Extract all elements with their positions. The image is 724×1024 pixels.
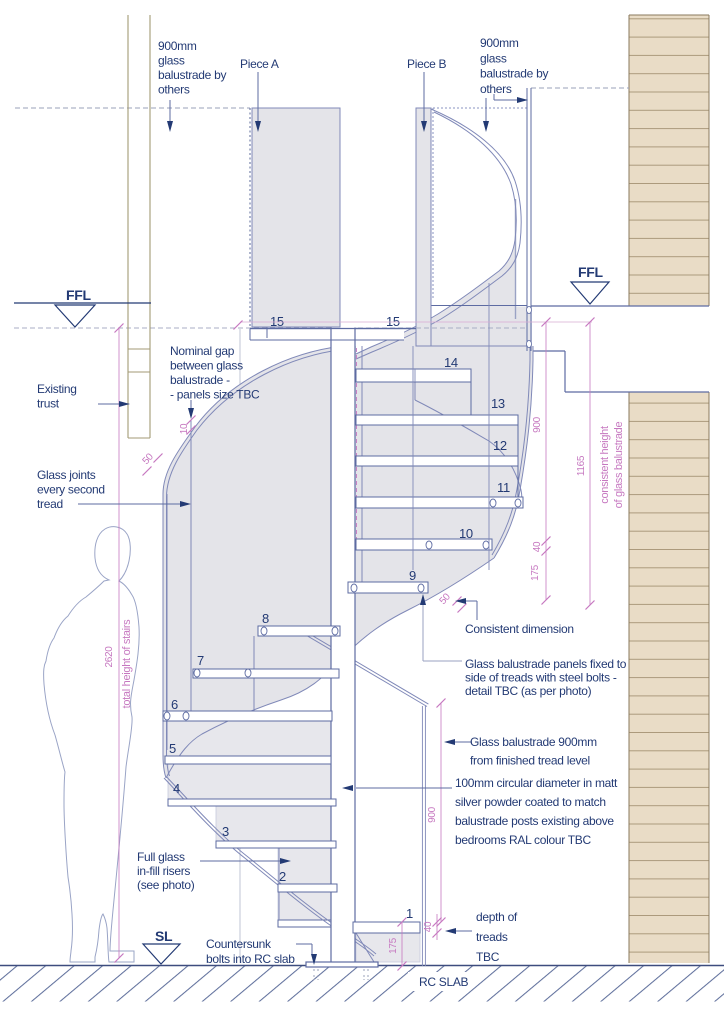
svg-text:175: 175 <box>388 937 399 954</box>
svg-text:Glass balustrade 900mm: Glass balustrade 900mm <box>470 735 597 749</box>
svg-text:depth of: depth of <box>476 910 518 924</box>
svg-text:glass: glass <box>158 54 185 68</box>
svg-text:100mm circular diameter in mat: 100mm circular diameter in matt <box>455 776 618 790</box>
svg-text:7: 7 <box>197 653 204 668</box>
svg-text:12: 12 <box>493 438 507 453</box>
svg-text:- panels size TBC: - panels size TBC <box>170 388 260 402</box>
svg-text:11: 11 <box>497 480 510 495</box>
svg-text:Piece A: Piece A <box>240 57 279 71</box>
svg-text:40: 40 <box>423 921 434 932</box>
svg-text:2: 2 <box>279 869 286 884</box>
svg-text:900: 900 <box>427 806 438 823</box>
svg-text:silver powder coated to match: silver powder coated to match <box>455 795 606 809</box>
svg-text:FFL: FFL <box>578 264 604 280</box>
svg-text:4: 4 <box>173 781 180 796</box>
svg-text:total height of stairs: total height of stairs <box>121 619 133 709</box>
svg-text:TBC: TBC <box>476 950 500 964</box>
svg-text:9: 9 <box>409 568 416 583</box>
svg-text:of glass balustrade: of glass balustrade <box>613 422 625 509</box>
svg-text:side of treads with steel bolt: side of treads with steel bolts - <box>465 671 617 685</box>
svg-text:15: 15 <box>270 314 284 329</box>
svg-text:balustrade by: balustrade by <box>158 68 226 82</box>
svg-text:1165: 1165 <box>576 455 587 476</box>
svg-text:from finished tread level: from finished tread level <box>470 754 590 768</box>
svg-text:10: 10 <box>179 423 190 434</box>
svg-text:Existing: Existing <box>37 382 77 396</box>
svg-text:balustrade posts existing abov: balustrade posts existing above <box>455 814 614 828</box>
svg-text:8: 8 <box>262 611 269 626</box>
svg-text:10: 10 <box>459 526 473 541</box>
svg-text:others: others <box>158 83 190 97</box>
svg-text:treads: treads <box>476 930 508 944</box>
svg-text:2620: 2620 <box>104 646 115 668</box>
svg-text:balustrade by: balustrade by <box>480 67 548 81</box>
svg-text:Glass balustrade panels fixed: Glass balustrade panels fixed to <box>465 657 627 671</box>
svg-text:Consistent dimension: Consistent dimension <box>465 622 574 636</box>
svg-text:5: 5 <box>169 741 176 756</box>
svg-text:Countersunk: Countersunk <box>206 937 272 951</box>
svg-text:trust: trust <box>37 397 60 411</box>
svg-text:FFL: FFL <box>66 287 92 303</box>
svg-text:(see photo): (see photo) <box>137 878 195 892</box>
svg-text:glass: glass <box>480 51 507 65</box>
svg-text:900mm: 900mm <box>158 39 197 53</box>
svg-text:every second: every second <box>37 483 105 497</box>
svg-text:40: 40 <box>532 541 543 552</box>
svg-text:14: 14 <box>444 355 458 370</box>
svg-text:RC SLAB: RC SLAB <box>419 975 469 989</box>
svg-text:Piece B: Piece B <box>407 57 447 71</box>
svg-text:consistent height: consistent height <box>599 426 611 504</box>
svg-text:900mm: 900mm <box>480 36 519 50</box>
svg-text:Full glass: Full glass <box>137 850 185 864</box>
svg-text:detail TBC (as per photo): detail TBC (as per photo) <box>465 684 592 698</box>
svg-text:balustrade -: balustrade - <box>170 373 230 387</box>
svg-text:Glass joints: Glass joints <box>37 468 96 482</box>
svg-text:in-fill risers: in-fill risers <box>137 864 190 878</box>
svg-text:others: others <box>480 82 512 96</box>
svg-text:bedrooms RAL colour TBC: bedrooms RAL colour TBC <box>455 833 591 847</box>
svg-text:13: 13 <box>491 396 505 411</box>
svg-text:bolts into RC slab: bolts into RC slab <box>206 952 295 966</box>
svg-text:SL: SL <box>155 928 173 944</box>
svg-text:900: 900 <box>532 416 543 433</box>
svg-text:6: 6 <box>171 697 178 712</box>
svg-text:175: 175 <box>530 564 541 581</box>
svg-text:3: 3 <box>222 824 229 839</box>
svg-text:Nominal gap: Nominal gap <box>170 344 235 358</box>
svg-text:1: 1 <box>406 906 413 921</box>
svg-text:tread: tread <box>37 497 63 511</box>
svg-text:15: 15 <box>386 314 400 329</box>
svg-text:between glass: between glass <box>170 359 243 373</box>
